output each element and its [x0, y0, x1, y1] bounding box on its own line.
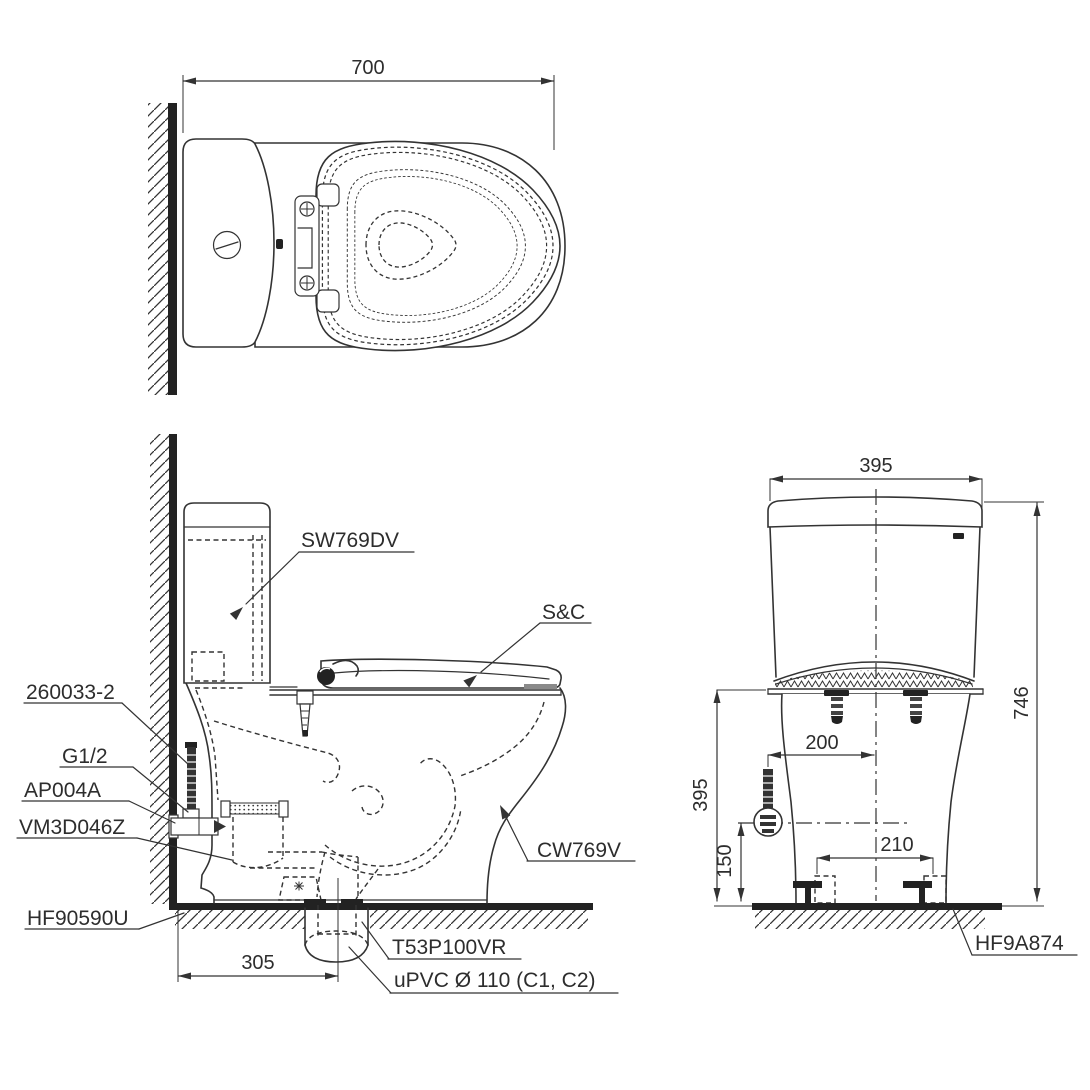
floor [752, 903, 1002, 910]
dim-top-depth: 700 [351, 57, 384, 79]
dim-rim-height: 395 [690, 778, 712, 811]
floor-hatching [755, 910, 985, 929]
dim-supply-offset: 200 [805, 732, 838, 754]
label-floor-flange: HF9A874 [975, 932, 1064, 955]
brand-logo-mark [953, 533, 964, 539]
dimension-700: 700 [183, 57, 554, 150]
floor-hatching [370, 910, 588, 929]
toilet-installation-diagram: 700 [0, 0, 1090, 1090]
supply-valve-front [754, 769, 782, 836]
tank-lid [768, 497, 982, 527]
label-bowl: CW769V [537, 839, 621, 862]
label-flush-fitting: VM3D046Z [19, 816, 125, 839]
wall-hatching [150, 434, 169, 904]
label-outlet-flange: T53P100VR [392, 936, 506, 959]
wall-hatching [148, 103, 169, 395]
label-seat-cover: S&C [542, 601, 585, 624]
label-wall-supply: 260033-2 [26, 681, 115, 704]
seat-bumper [524, 684, 557, 689]
tank-lid-clip [276, 239, 283, 249]
dimension-746: 746 [984, 502, 1044, 901]
side-view: 305 SW769DV S&C CW769V 260033-2 G1/2 AP0… [17, 434, 635, 993]
label-floor-seal: HF90590U [27, 907, 129, 930]
label-tank: SW769DV [301, 529, 399, 552]
tank-body-fill [770, 527, 980, 677]
stop-valve-body [171, 818, 218, 835]
dim-total-height: 746 [1011, 686, 1033, 719]
dim-outlet-offset: 305 [241, 952, 274, 974]
label-drain-pipe: uPVC Ø 110 (C1, C2) [394, 969, 596, 992]
bidet-hose-nozzle [297, 691, 313, 736]
technical-drawing-sheet: 700 [0, 0, 1090, 1090]
label-stop-valve: AP004A [24, 779, 101, 802]
supply-riser-pipe [187, 747, 196, 809]
dim-supply-height: 150 [714, 844, 736, 877]
label-thread-size: G1/2 [62, 745, 108, 768]
dim-tank-width: 395 [859, 455, 892, 477]
bowl-profile [186, 683, 566, 903]
wall [168, 103, 177, 395]
floor-hatching [175, 910, 305, 929]
dim-bolt-pitch: 210 [880, 834, 913, 856]
seat-hinge-pivot [317, 667, 335, 685]
front-view: 395 746 200 395 150 [690, 455, 1077, 955]
floor [169, 903, 593, 910]
top-view: 700 [148, 57, 565, 395]
trapway-hidden-lines [214, 702, 544, 900]
